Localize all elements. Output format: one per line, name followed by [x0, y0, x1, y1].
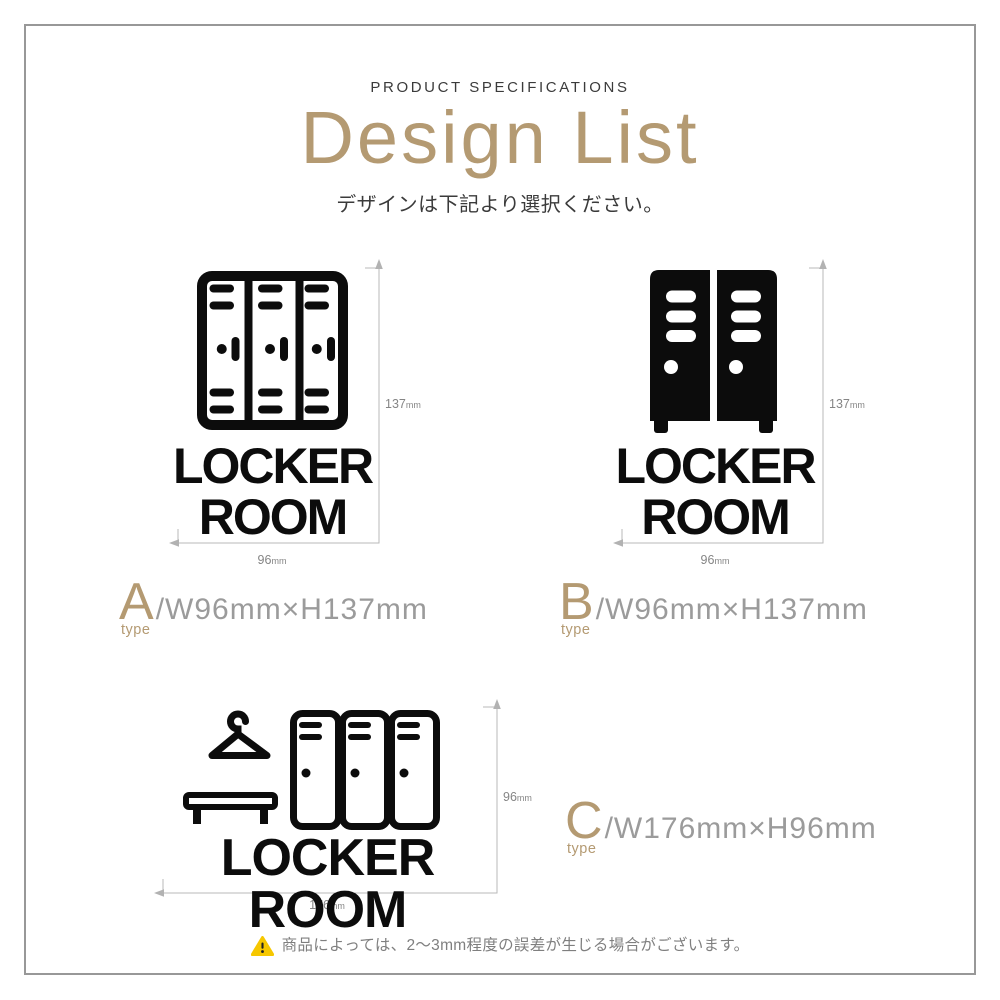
note-text: 商品によっては、2〜3mm程度の誤差が生じる場合がございます。 — [282, 936, 750, 956]
type-spec: /W176mm×H96mm — [605, 812, 877, 846]
subtitle: デザインは下記より選択ください。 — [0, 193, 1000, 217]
type-spec: /W96mm×H137mm — [156, 593, 428, 627]
warning-icon — [251, 936, 274, 956]
sign-line-2: ROOM — [595, 492, 835, 543]
type-word: type — [121, 622, 150, 638]
type-a-label-row: A type /W96mm×H137mm — [119, 576, 428, 628]
height-dimension-label: 96mm — [503, 788, 532, 806]
height-dimension-label: 137mm — [829, 395, 865, 413]
footer-note: 商品によっては、2〜3mm程度の誤差が生じる場合がございます。 — [0, 934, 1000, 958]
sign-line-1: LOCKER — [595, 441, 835, 492]
type-c-label-row: C type /W176mm×H96mm — [565, 795, 877, 847]
sign-line-2: ROOM — [152, 492, 393, 543]
sign-text-c: LOCKER ROOM — [140, 832, 515, 936]
height-dimension-label: 137mm — [385, 395, 421, 413]
product-spec-sheet: PRODUCT SPECIFICATIONS Design List デザインは… — [0, 0, 1000, 1000]
type-word: type — [561, 622, 590, 638]
sign-line-1: LOCKER ROOM — [140, 832, 515, 936]
width-dimension-label: 96mm — [237, 551, 307, 569]
width-dimension-label: 96mm — [680, 551, 750, 569]
page-title: Design List — [0, 101, 1000, 175]
type-spec: /W96mm×H137mm — [596, 593, 868, 627]
sign-text-a: LOCKER ROOM — [152, 441, 393, 543]
type-word: type — [567, 841, 596, 857]
type-b-label-row: B type /W96mm×H137mm — [559, 576, 868, 628]
sign-text-b: LOCKER ROOM — [595, 441, 835, 543]
sign-line-1: LOCKER — [152, 441, 393, 492]
eyebrow-label: PRODUCT SPECIFICATIONS — [0, 79, 1000, 96]
